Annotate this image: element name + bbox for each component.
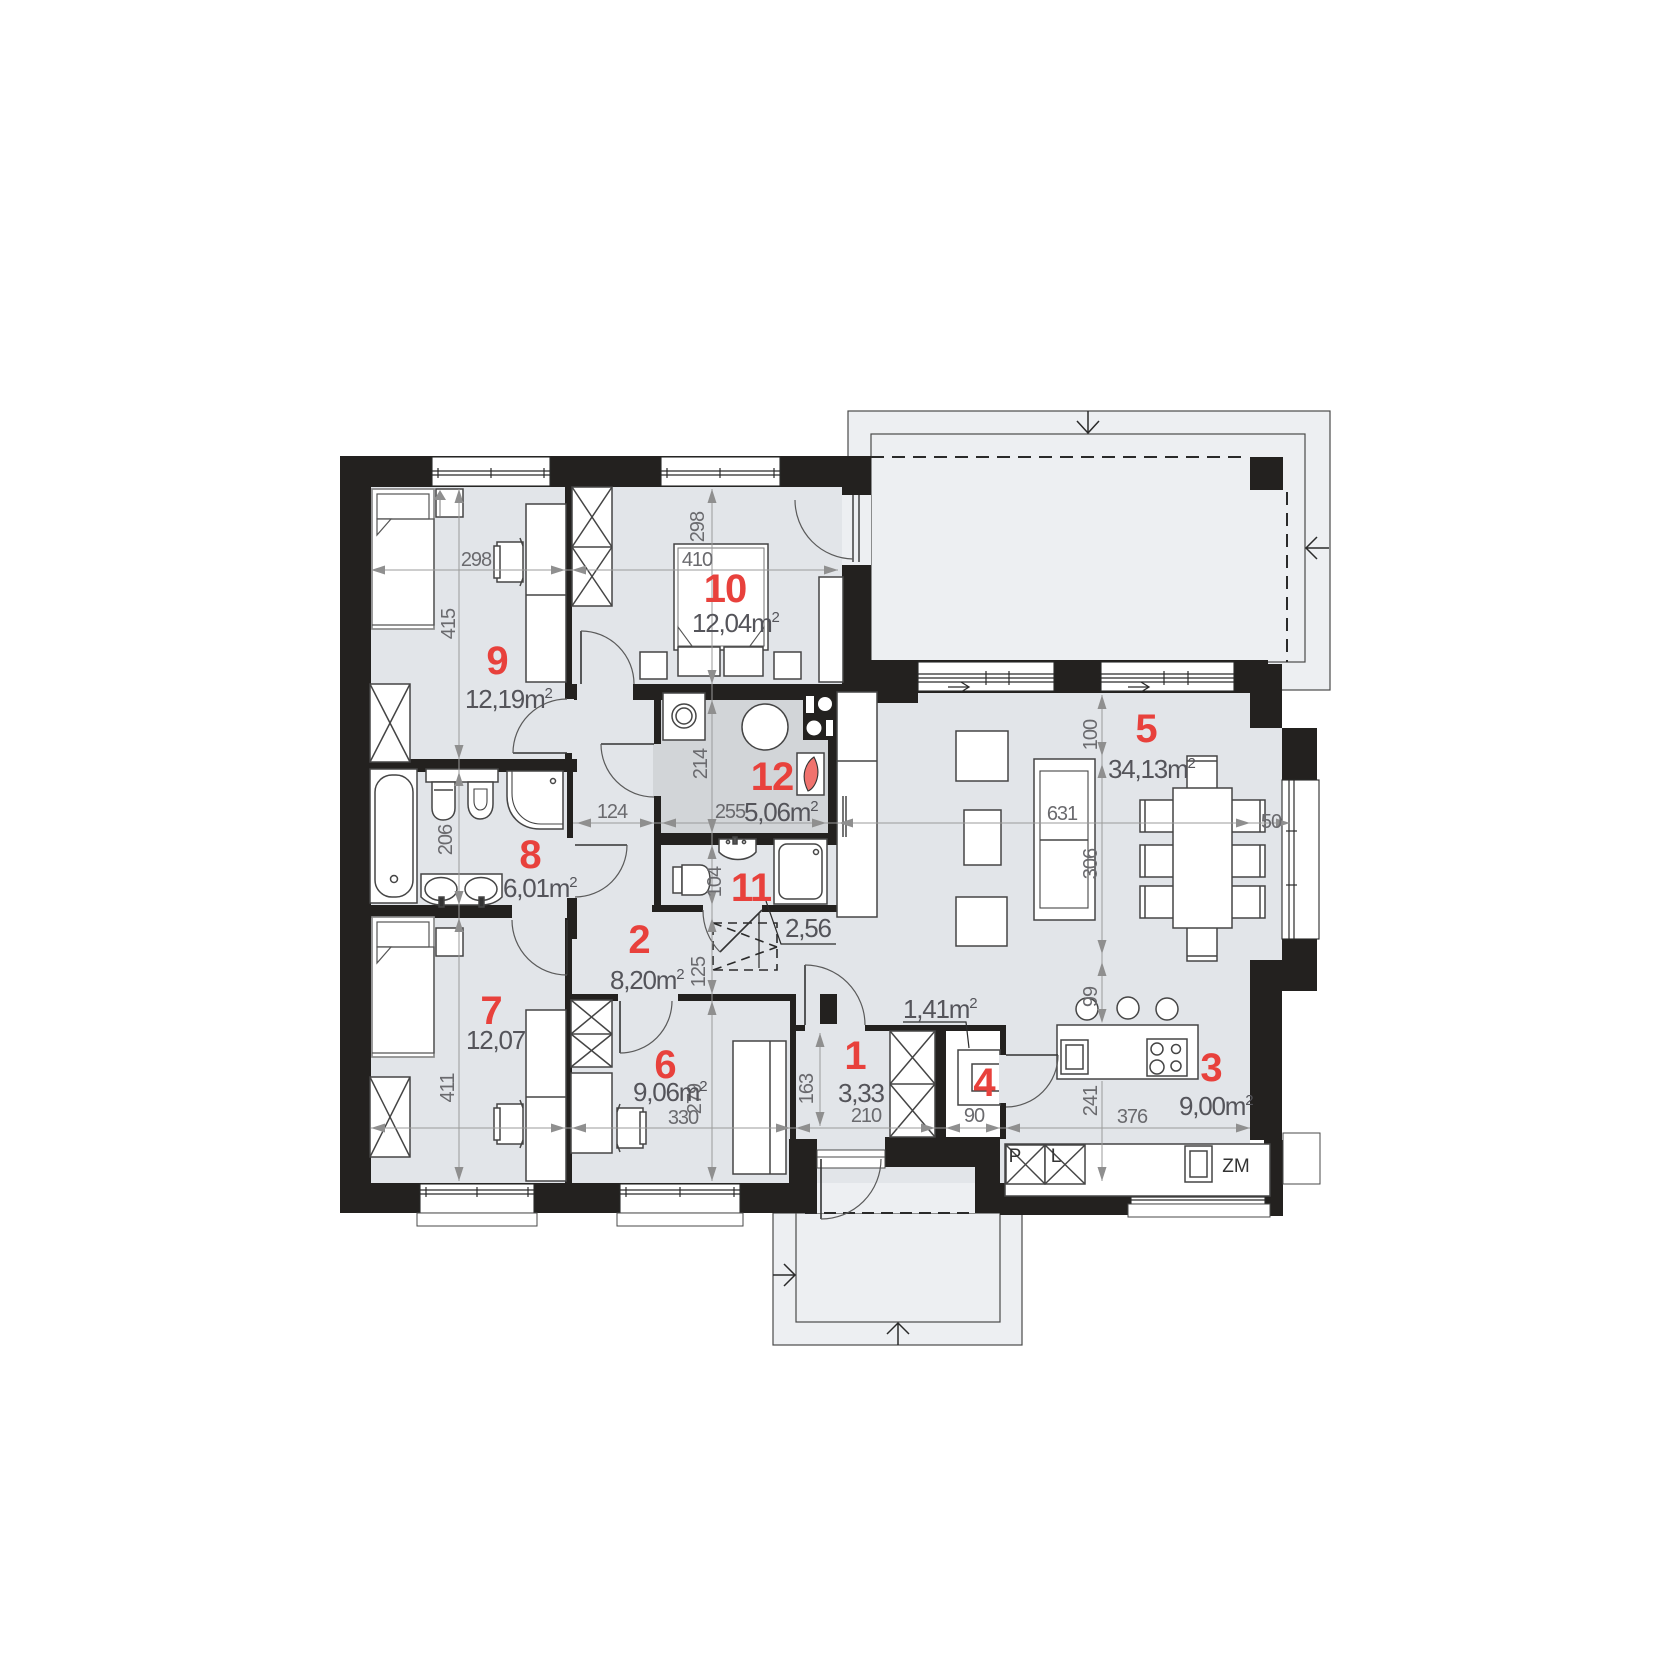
svg-text:298: 298 xyxy=(461,549,492,571)
svg-text:306: 306 xyxy=(1080,848,1102,879)
svg-text:163: 163 xyxy=(796,1073,818,1104)
svg-text:9,00m2: 9,00m2 xyxy=(1179,1091,1253,1121)
svg-text:8: 8 xyxy=(519,833,541,877)
svg-text:3: 3 xyxy=(1200,1046,1221,1090)
svg-text:2: 2 xyxy=(628,918,649,962)
svg-text:34,13m2: 34,13m2 xyxy=(1108,754,1196,784)
svg-text:99: 99 xyxy=(1080,986,1102,1007)
svg-text:124: 124 xyxy=(597,801,628,823)
svg-text:125: 125 xyxy=(688,956,710,987)
svg-text:8,20m2: 8,20m2 xyxy=(610,965,684,995)
svg-text:P: P xyxy=(1009,1146,1022,1167)
svg-text:7: 7 xyxy=(480,989,501,1033)
svg-text:3,33: 3,33 xyxy=(838,1078,885,1108)
svg-text:5: 5 xyxy=(1135,707,1157,751)
svg-text:90: 90 xyxy=(964,1105,985,1127)
svg-text:214: 214 xyxy=(690,748,712,779)
svg-text:12: 12 xyxy=(751,755,794,799)
svg-text:298: 298 xyxy=(687,511,709,542)
svg-text:12,19m2: 12,19m2 xyxy=(465,684,553,714)
svg-text:6: 6 xyxy=(654,1043,675,1087)
svg-text:12,04m2: 12,04m2 xyxy=(692,608,780,638)
svg-text:255: 255 xyxy=(715,801,746,823)
svg-text:415: 415 xyxy=(438,608,460,639)
svg-text:411: 411 xyxy=(437,1073,459,1103)
svg-text:104: 104 xyxy=(704,866,726,897)
svg-text:4: 4 xyxy=(973,1061,996,1105)
svg-text:376: 376 xyxy=(1117,1106,1148,1128)
svg-text:50: 50 xyxy=(1261,811,1282,833)
svg-text:1: 1 xyxy=(844,1034,866,1078)
svg-text:210: 210 xyxy=(851,1105,882,1127)
svg-text:5,06m2: 5,06m2 xyxy=(744,797,818,827)
svg-text:ZM: ZM xyxy=(1222,1156,1249,1177)
svg-text:6,01m2: 6,01m2 xyxy=(503,873,577,903)
svg-text:1,41m2: 1,41m2 xyxy=(903,994,977,1024)
svg-text:10: 10 xyxy=(704,567,747,611)
svg-text:9: 9 xyxy=(486,639,507,683)
svg-text:11: 11 xyxy=(731,866,772,910)
svg-text:631: 631 xyxy=(1047,803,1078,825)
svg-text:206: 206 xyxy=(435,824,457,855)
svg-text:241: 241 xyxy=(1080,1085,1102,1116)
svg-text:L: L xyxy=(1051,1146,1062,1167)
svg-text:100: 100 xyxy=(1080,719,1102,750)
svg-text:2,56: 2,56 xyxy=(785,913,832,943)
